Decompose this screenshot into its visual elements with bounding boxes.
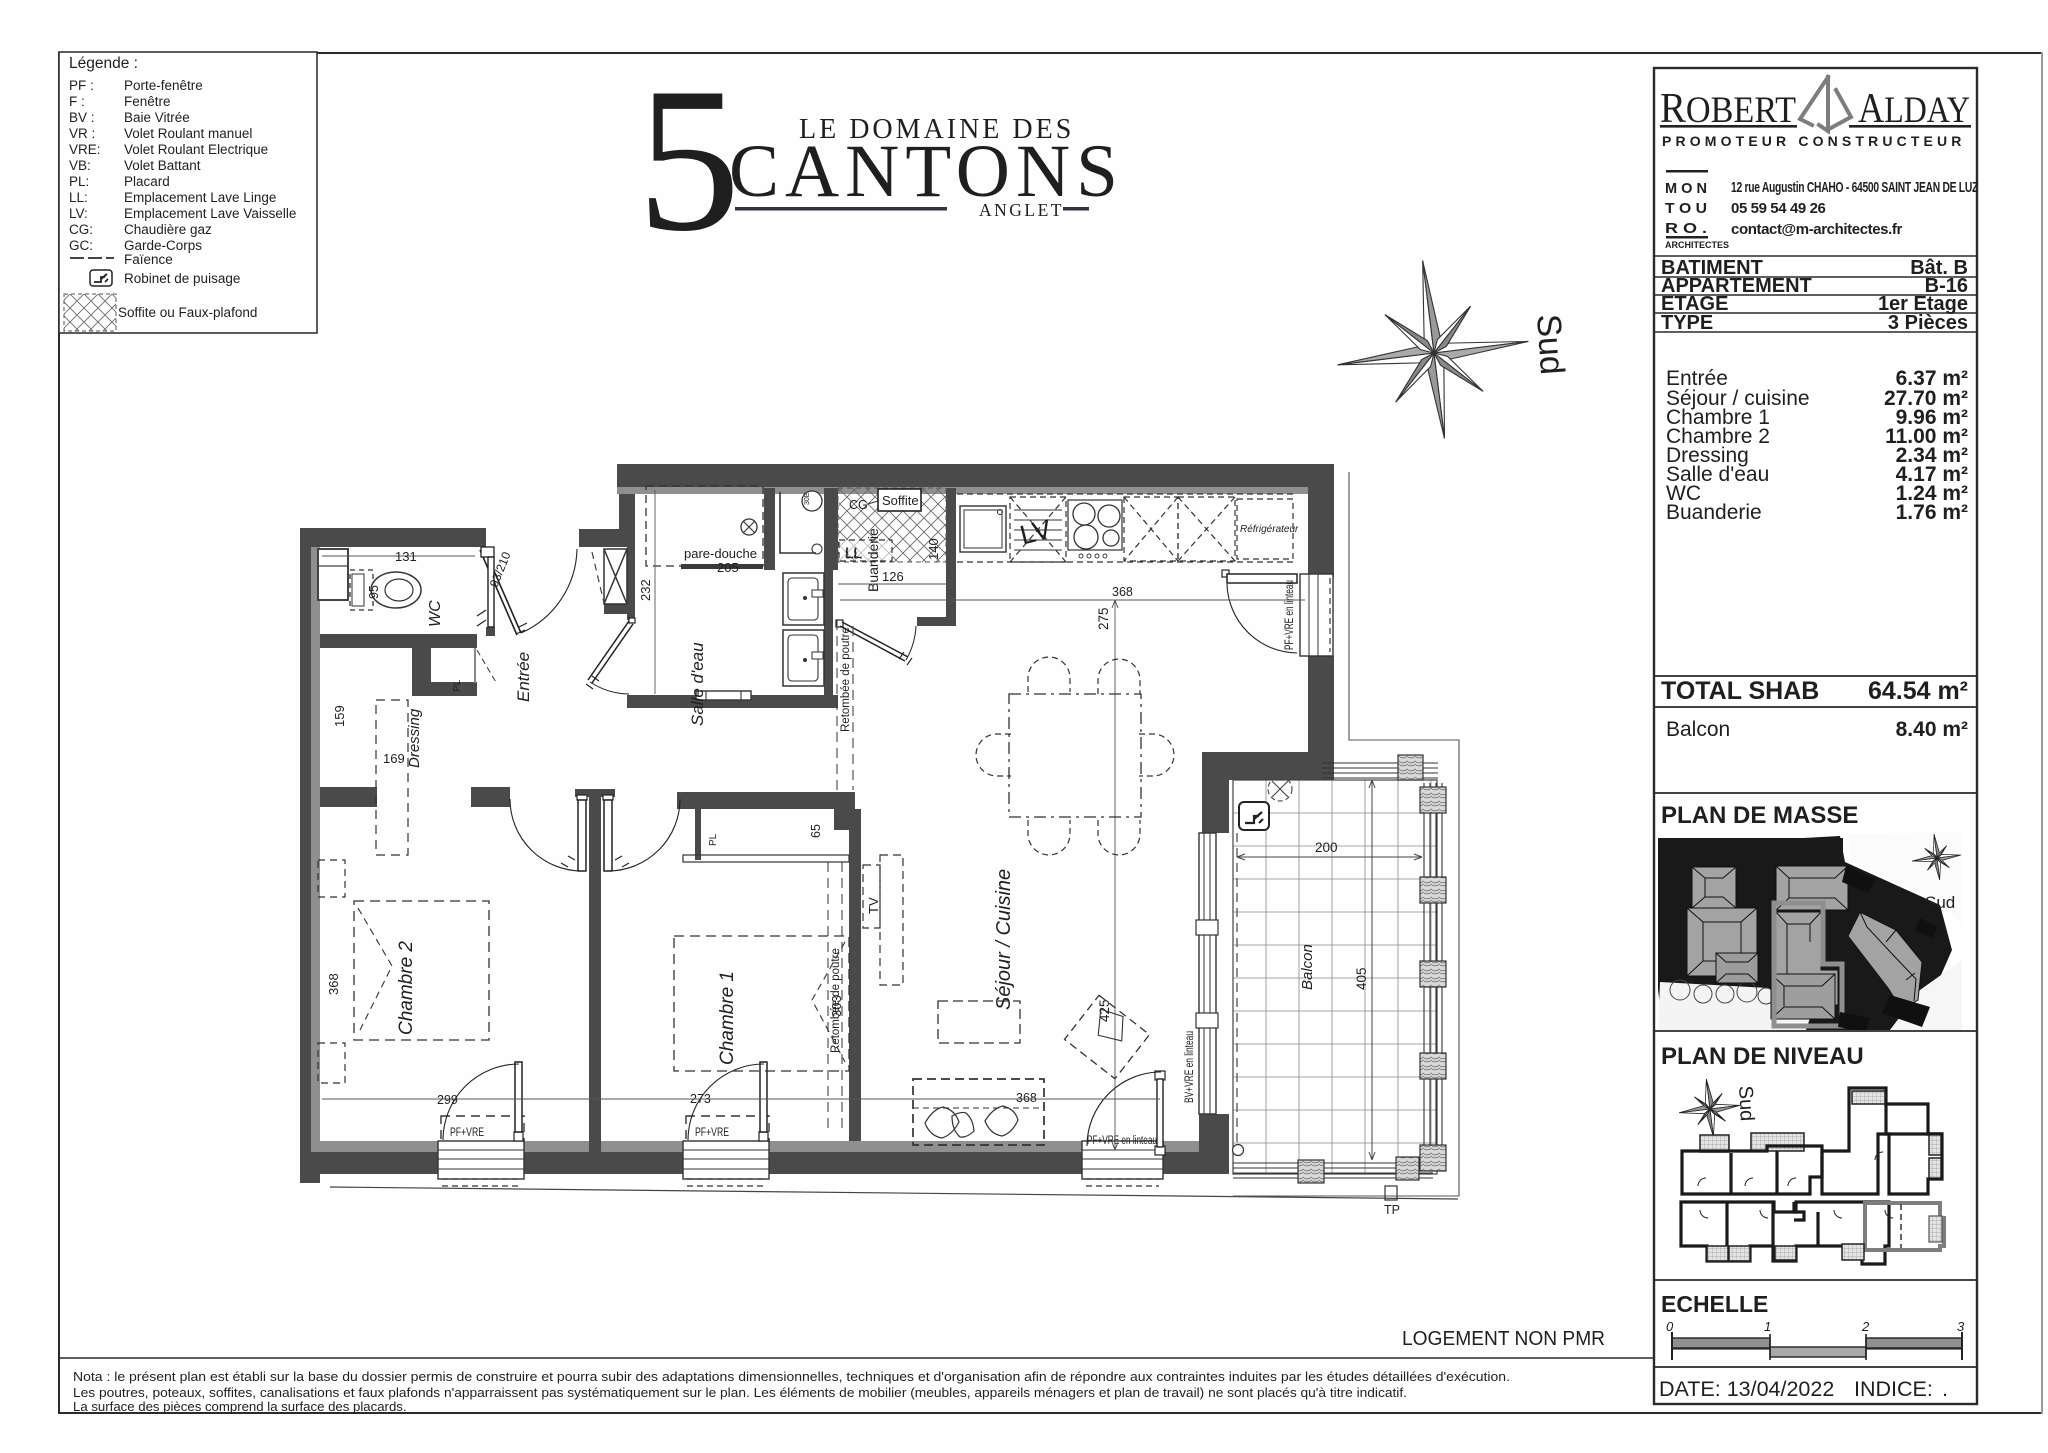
svg-text:Réfrigérateur: Réfrigérateur (1240, 524, 1299, 535)
svg-text:Les poutres, poteaux, soffites: Les poutres, poteaux, soffites, canalisa… (73, 1385, 1407, 1400)
svg-text:159: 159 (332, 705, 347, 727)
svg-text:GC:: GC: (69, 238, 93, 253)
svg-text:Légende :: Légende : (69, 55, 138, 72)
svg-text:Nota : le présent plan est éta: Nota : le présent plan est établi sur la… (73, 1369, 1510, 1384)
svg-text:LV:: LV: (69, 206, 88, 221)
svg-text:BV+VRE en linteau: BV+VRE en linteau (1184, 1031, 1196, 1103)
svg-text:VRE:: VRE: (69, 142, 101, 157)
svg-text:303: 303 (829, 995, 844, 1017)
svg-text:1: 1 (1764, 1319, 1771, 1334)
svg-text:0: 0 (1666, 1319, 1674, 1334)
svg-text:LL:: LL: (69, 190, 88, 205)
svg-text:PL:: PL: (69, 174, 89, 189)
svg-text:ARCHITECTES: ARCHITECTES (1665, 240, 1729, 250)
svg-text:Séjour / Cuisine: Séjour / Cuisine (993, 869, 1015, 1010)
svg-text:TP: TP (1384, 1203, 1400, 1217)
svg-text:PL: PL (452, 679, 463, 692)
svg-text:Buanderie: Buanderie (865, 528, 881, 592)
svg-text:Soffite: Soffite (882, 493, 919, 508)
svg-text:Fenêtre: Fenêtre (124, 94, 171, 109)
svg-text:5: 5 (637, 45, 741, 274)
svg-text:PLAN DE NIVEAU: PLAN DE NIVEAU (1661, 1043, 1864, 1070)
svg-text:LOGEMENT NON PMR: LOGEMENT NON PMR (1402, 1328, 1605, 1350)
svg-text:131: 131 (395, 549, 417, 564)
svg-text:DATE: 13/04/2022: DATE: 13/04/2022 (1659, 1377, 1834, 1401)
svg-text:Salle d'eau: Salle d'eau (688, 642, 707, 726)
svg-text:Sud: Sud (1925, 893, 1955, 912)
svg-text:LL: LL (845, 545, 862, 562)
svg-text:Placard: Placard (124, 174, 170, 189)
svg-text:05 59 54 49 26: 05 59 54 49 26 (1731, 200, 1826, 217)
svg-text:95: 95 (367, 585, 381, 599)
svg-text:PF+VRE: PF+VRE (695, 1127, 729, 1139)
svg-text:PROMOTEUR CONSTRUCTEUR: PROMOTEUR CONSTRUCTEUR (1662, 133, 1966, 149)
svg-text:12 rue Augustin CHAHO - 64500: 12 rue Augustin CHAHO - 64500 SAINT JEAN… (1731, 179, 1978, 196)
svg-text:Volet Battant: Volet Battant (124, 158, 201, 173)
svg-text:30E: 30E (804, 492, 811, 505)
svg-text:T O U: T O U (1665, 200, 1707, 217)
svg-text:Sud: Sud (1529, 313, 1571, 376)
svg-text:Soffite ou Faux-plafond: Soffite ou Faux-plafond (118, 305, 257, 320)
svg-text:La surface des pièces comprend: La surface des pièces comprend la surfac… (73, 1399, 407, 1414)
svg-text:368: 368 (1016, 1091, 1037, 1105)
svg-text:Volet Roulant Electrique: Volet Roulant Electrique (124, 142, 268, 157)
svg-text:1.76 m²: 1.76 m² (1896, 501, 1968, 524)
svg-text:VR :: VR : (69, 126, 95, 141)
svg-text:64.54 m²: 64.54 m² (1868, 677, 1968, 705)
svg-text:Porte-fenêtre: Porte-fenêtre (124, 78, 203, 93)
svg-text:Baie Vitrée: Baie Vitrée (124, 110, 190, 125)
svg-text:Faïence: Faïence (124, 252, 173, 267)
svg-text:Garde-Corps: Garde-Corps (124, 238, 202, 253)
svg-text:Emplacement Lave Vaisselle: Emplacement Lave Vaisselle (124, 206, 296, 221)
svg-text:3 Pièces: 3 Pièces (1888, 312, 1968, 334)
svg-text:ANGLET: ANGLET (979, 200, 1064, 220)
svg-text:126: 126 (882, 569, 904, 584)
svg-text:TYPE: TYPE (1661, 312, 1713, 334)
svg-text:299: 299 (437, 1093, 458, 1107)
svg-text:CANTONS: CANTONS (729, 130, 1124, 213)
svg-text:F :: F : (69, 94, 85, 109)
svg-text:Volet Roulant manuel: Volet Roulant manuel (124, 126, 252, 141)
svg-text:Balcon: Balcon (1299, 944, 1316, 990)
svg-text:PF+VRE: PF+VRE (450, 1127, 484, 1139)
svg-text:pare-douche: pare-douche (684, 546, 757, 561)
svg-text:140: 140 (926, 538, 941, 560)
svg-text:368: 368 (326, 973, 341, 995)
svg-text:200: 200 (1315, 840, 1338, 855)
svg-text:Buanderie: Buanderie (1666, 501, 1762, 524)
svg-text:Retombée de poutre: Retombée de poutre (840, 627, 852, 732)
svg-text:VB:: VB: (69, 158, 91, 173)
svg-text:CG: CG (849, 498, 868, 512)
svg-text:8.40 m²: 8.40 m² (1896, 718, 1968, 741)
svg-text:Chaudière gaz: Chaudière gaz (124, 222, 212, 237)
svg-text:BV :: BV : (69, 110, 95, 125)
svg-text:232: 232 (638, 579, 653, 601)
svg-text:ECHELLE: ECHELLE (1661, 1291, 1768, 1317)
svg-text:PL: PL (708, 833, 719, 846)
svg-text:PF+VRE en linteau: PF+VRE en linteau (1284, 580, 1296, 650)
svg-text:CG:: CG: (69, 222, 93, 237)
svg-text:169: 169 (383, 751, 405, 766)
svg-text:65: 65 (809, 824, 823, 838)
svg-text:.: . (1942, 1377, 1948, 1401)
svg-text:Robinet de puisage: Robinet de puisage (124, 271, 240, 286)
svg-text:405: 405 (1354, 967, 1369, 990)
svg-text:PF :: PF : (69, 78, 94, 93)
svg-text:Emplacement Lave Linge: Emplacement Lave Linge (124, 190, 276, 205)
svg-text:PF+VRE en linteau: PF+VRE en linteau (1087, 1135, 1157, 1147)
svg-text:INDICE:: INDICE: (1854, 1377, 1933, 1401)
svg-text:Entrée: Entrée (514, 652, 533, 702)
svg-text:Chambre 2: Chambre 2 (396, 941, 417, 1035)
svg-text:3: 3 (1957, 1319, 1965, 1334)
svg-text:Sud: Sud (1734, 1085, 1758, 1122)
svg-text:275: 275 (1096, 607, 1111, 630)
svg-text:PLAN DE MASSE: PLAN DE MASSE (1661, 802, 1858, 829)
svg-text:WC: WC (427, 600, 444, 627)
svg-text:TOTAL SHAB: TOTAL SHAB (1661, 677, 1819, 705)
svg-text:2: 2 (1861, 1319, 1870, 1334)
svg-text:205: 205 (717, 560, 739, 575)
svg-text:R O .: R O . (1665, 220, 1707, 237)
svg-text:Chambre 1: Chambre 1 (717, 971, 738, 1065)
svg-text:368: 368 (1112, 585, 1133, 599)
svg-text:TV: TV (866, 897, 881, 914)
svg-text:contact@m-architectes.fr: contact@m-architectes.fr (1731, 221, 1902, 238)
svg-text:M O N: M O N (1665, 180, 1707, 197)
svg-text:Balcon: Balcon (1666, 718, 1730, 741)
